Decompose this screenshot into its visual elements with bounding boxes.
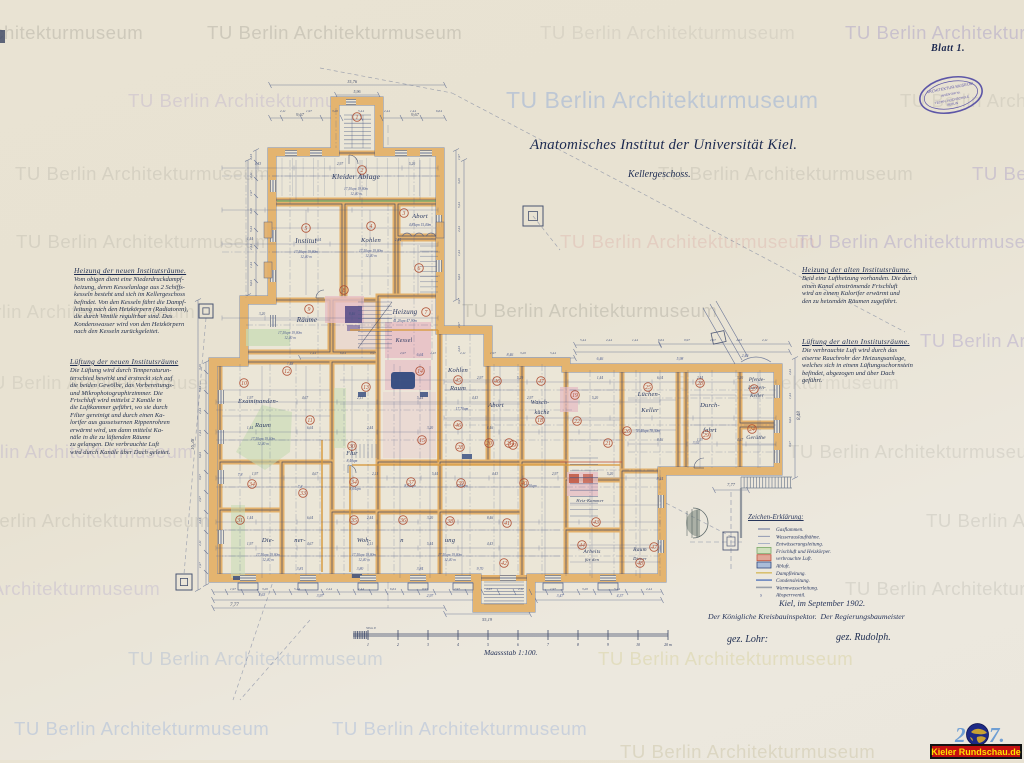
svg-text:46: 46: [455, 422, 461, 429]
svg-text:48: 48: [637, 560, 643, 567]
svg-text:44: 44: [579, 542, 585, 549]
svg-text:55,19: 55,19: [482, 617, 493, 623]
svg-text:6,64: 6,64: [198, 452, 203, 458]
svg-text:7,77: 7,77: [230, 603, 239, 608]
svg-text:25: 25: [645, 385, 651, 391]
svg-text:10: 10: [241, 381, 247, 387]
svg-text:BERLIN: BERLIN: [947, 101, 958, 107]
svg-text:Raum: Raum: [254, 422, 271, 429]
svg-text:1,97: 1,97: [249, 190, 254, 196]
svg-text:Institut: Institut: [294, 237, 317, 245]
svg-text:5,96: 5,96: [354, 89, 361, 95]
svg-text:Dampfleitung.: Dampfleitung.: [775, 570, 806, 577]
svg-text:verbrauchte Luft.: verbrauchte Luft.: [776, 555, 812, 562]
svg-text:1: 1: [356, 115, 359, 121]
svg-text:2,11: 2,11: [280, 109, 286, 114]
svg-text:2,40: 2,40: [742, 354, 749, 359]
svg-text:9: 9: [607, 643, 609, 647]
svg-text:8,46: 8,46: [507, 353, 514, 358]
svg-text:0,97: 0,97: [198, 474, 203, 480]
svg-text:38: 38: [446, 519, 453, 525]
svg-text:Gasflammen.: Gasflammen.: [776, 526, 804, 533]
svg-text:3,20: 3,20: [262, 587, 268, 592]
svg-text:34: 34: [350, 479, 357, 486]
svg-text:1,44: 1,44: [198, 430, 203, 436]
svg-text:28: 28: [697, 381, 703, 387]
svg-text:37: 37: [407, 480, 415, 486]
svg-text:2: 2: [397, 643, 399, 647]
svg-text:0,97: 0,97: [788, 441, 793, 447]
svg-text:Woh-: Woh-: [357, 537, 371, 544]
svg-text:15: 15: [419, 438, 425, 444]
svg-text:20: 20: [486, 441, 492, 447]
svg-text:1,44: 1,44: [788, 393, 793, 399]
svg-text:Kleider Ablage: Kleider Ablage: [331, 172, 381, 181]
svg-text:19: 19: [572, 393, 578, 399]
svg-text:1,44: 1,44: [310, 351, 316, 356]
svg-text:5,44: 5,44: [580, 338, 586, 343]
svg-text:3,20: 3,20: [582, 587, 588, 592]
svg-text:22: 22: [574, 419, 580, 425]
svg-text:2,11: 2,11: [249, 172, 254, 178]
svg-text:3: 3: [427, 643, 429, 647]
svg-text:5,98: 5,98: [677, 357, 684, 362]
svg-text:5,44: 5,44: [198, 386, 203, 392]
svg-text:2,44: 2,44: [326, 587, 332, 592]
svg-text:24: 24: [749, 426, 755, 433]
svg-text:8: 8: [343, 288, 346, 294]
svg-text:2,97: 2,97: [427, 594, 435, 599]
svg-text:5,44: 5,44: [294, 587, 300, 592]
svg-text:5,44: 5,44: [614, 587, 620, 592]
svg-text:Pferde-: Pferde-: [748, 378, 765, 383]
svg-text:Examinanden-: Examinanden-: [237, 398, 278, 405]
svg-text:0,97: 0,97: [370, 351, 376, 356]
svg-text:1,97: 1,97: [230, 587, 236, 592]
svg-text:6,64: 6,64: [436, 109, 442, 114]
svg-text:35: 35: [350, 518, 357, 524]
svg-text:18: 18: [537, 418, 543, 424]
svg-text:9,67: 9,67: [296, 112, 305, 118]
svg-text:4,37: 4,37: [617, 594, 625, 599]
svg-text:Die-: Die-: [261, 537, 274, 544]
svg-text:6,64: 6,64: [340, 351, 346, 356]
svg-text:6,64: 6,64: [249, 280, 254, 286]
svg-text:13: 13: [363, 385, 369, 391]
svg-text:n: n: [400, 537, 403, 544]
svg-text:Heizung: Heizung: [392, 308, 418, 316]
svg-text:1,44: 1,44: [358, 587, 364, 592]
svg-text:12: 12: [284, 369, 290, 375]
svg-text:Flur: Flur: [345, 451, 358, 457]
svg-text:0,97: 0,97: [684, 338, 690, 343]
svg-text:4,43: 4,43: [249, 154, 254, 160]
svg-text:Frischluft und Heizkörper.: Frischluft und Heizkörper.: [775, 548, 831, 555]
svg-text:3,20: 3,20: [249, 208, 254, 214]
svg-text:1,97: 1,97: [306, 109, 312, 114]
svg-text:3,47: 3,47: [557, 594, 565, 599]
svg-text:Keller: Keller: [749, 394, 764, 399]
svg-text:2,11: 2,11: [762, 338, 768, 343]
svg-text:6,64: 6,64: [788, 417, 793, 423]
svg-text:29: 29: [703, 433, 709, 439]
svg-text:7: 7: [547, 643, 550, 647]
svg-text:2,11: 2,11: [198, 540, 203, 546]
svg-text:6,46: 6,46: [597, 357, 604, 362]
svg-text:3,20: 3,20: [520, 351, 526, 356]
svg-text:ung: ung: [445, 537, 456, 544]
svg-text:Raum: Raum: [449, 385, 466, 392]
svg-text:9: 9: [308, 307, 311, 313]
svg-text:3: 3: [402, 211, 406, 217]
svg-text:5: 5: [487, 643, 489, 647]
svg-text:6: 6: [418, 266, 421, 272]
svg-text:Entwässerungsleitung.: Entwässerungsleitung.: [775, 542, 823, 548]
svg-text:43: 43: [593, 519, 599, 526]
svg-text:küche: küche: [535, 410, 550, 416]
svg-text:10: 10: [636, 643, 640, 647]
svg-text:0,97: 0,97: [422, 587, 428, 592]
svg-text:40: 40: [521, 480, 527, 487]
svg-text:Geräthe: Geräthe: [746, 435, 766, 441]
svg-text:2,44: 2,44: [384, 109, 390, 114]
svg-text:2: 2: [361, 168, 364, 174]
svg-text:50 m 0: 50 m 0: [366, 626, 376, 630]
svg-text:Lüchen-: Lüchen-: [637, 391, 661, 398]
svg-text:45: 45: [455, 377, 461, 384]
svg-text:20 m: 20 m: [664, 643, 672, 647]
svg-text:1,97: 1,97: [457, 154, 462, 160]
svg-text:s: s: [760, 594, 762, 599]
svg-text:Heiz-Kammer: Heiz-Kammer: [575, 498, 603, 503]
svg-text:7,77: 7,77: [727, 482, 736, 488]
svg-text:2,97: 2,97: [198, 496, 203, 502]
svg-text:33: 33: [299, 491, 306, 497]
svg-text:29: 29: [510, 443, 516, 449]
svg-text:11: 11: [307, 418, 312, 424]
svg-text:30: 30: [348, 444, 355, 450]
svg-text:4: 4: [457, 643, 459, 647]
svg-text:8: 8: [577, 643, 579, 647]
svg-text:4: 4: [370, 223, 373, 230]
svg-text:Räume: Räume: [296, 316, 317, 324]
svg-text:3,20: 3,20: [457, 178, 462, 184]
svg-text:Abort: Abort: [411, 213, 428, 220]
svg-text:8,48: 8,48: [797, 411, 802, 420]
svg-text:Absperrventil.: Absperrventil.: [775, 593, 806, 599]
svg-text:ner-: ner-: [294, 537, 306, 544]
svg-text:2,44: 2,44: [646, 587, 652, 592]
svg-text:28: 28: [457, 445, 463, 451]
svg-text:21: 21: [605, 441, 611, 447]
svg-text:2,97: 2,97: [454, 587, 460, 592]
svg-text:5,44: 5,44: [457, 202, 462, 208]
svg-text:4,43: 4,43: [736, 338, 742, 343]
svg-text:Kohlen: Kohlen: [360, 237, 381, 244]
svg-text:3,97: 3,97: [317, 594, 325, 599]
svg-text:41: 41: [504, 520, 510, 527]
svg-text:26: 26: [624, 429, 630, 435]
svg-text:Condensleitung.: Condensleitung.: [776, 578, 810, 584]
svg-text:31: 31: [236, 518, 243, 524]
svg-text:5,44: 5,44: [249, 226, 254, 232]
svg-text:2,44: 2,44: [457, 226, 462, 232]
svg-text:36: 36: [399, 518, 406, 524]
svg-text:Kohlen: Kohlen: [447, 367, 468, 374]
svg-text:Abluft.: Abluft.: [775, 563, 790, 570]
svg-text:1,44: 1,44: [249, 262, 254, 268]
svg-text:Kessel: Kessel: [395, 338, 413, 344]
svg-text:6,64: 6,64: [390, 587, 396, 592]
svg-text:34: 34: [248, 481, 255, 488]
svg-text:6,64: 6,64: [457, 274, 462, 280]
svg-text:Abort: Abort: [487, 402, 504, 409]
svg-text:1,97: 1,97: [550, 587, 556, 592]
svg-text:14: 14: [417, 368, 423, 375]
svg-text:Keller: Keller: [640, 407, 659, 414]
svg-text:6: 6: [517, 643, 519, 647]
svg-text:0,97: 0,97: [457, 298, 462, 304]
svg-text:4,63: 4,63: [259, 593, 266, 598]
svg-text:39: 39: [457, 481, 464, 487]
svg-text:Warmwasserleitung.: Warmwasserleitung.: [776, 585, 818, 591]
svg-text:15,76: 15,76: [347, 79, 358, 85]
svg-text:Raum: Raum: [632, 547, 647, 553]
svg-text:1,44: 1,44: [632, 338, 638, 343]
svg-text:Wasch-: Wasch-: [531, 400, 550, 406]
svg-text:1,44: 1,44: [457, 250, 462, 256]
svg-text:3,20: 3,20: [198, 364, 203, 370]
svg-text:5,44: 5,44: [550, 351, 556, 356]
svg-text:für den: für den: [585, 557, 600, 562]
svg-text:46: 46: [494, 378, 500, 385]
svg-text:2,44: 2,44: [198, 408, 203, 414]
svg-text:2,44: 2,44: [788, 369, 793, 375]
svg-text:42: 42: [501, 560, 507, 567]
svg-text:2,44: 2,44: [249, 244, 254, 250]
svg-text:Durch-: Durch-: [699, 402, 720, 409]
svg-text:1,97: 1,97: [198, 562, 203, 568]
svg-text:Arbeits: Arbeits: [582, 549, 600, 555]
svg-text:5: 5: [305, 226, 308, 232]
svg-text:4,43: 4,43: [198, 518, 203, 524]
svg-text:1: 1: [367, 643, 369, 647]
svg-text:Wasserauslaufhähne.: Wasserauslaufhähne.: [776, 533, 820, 540]
svg-text:2,44: 2,44: [606, 338, 612, 343]
